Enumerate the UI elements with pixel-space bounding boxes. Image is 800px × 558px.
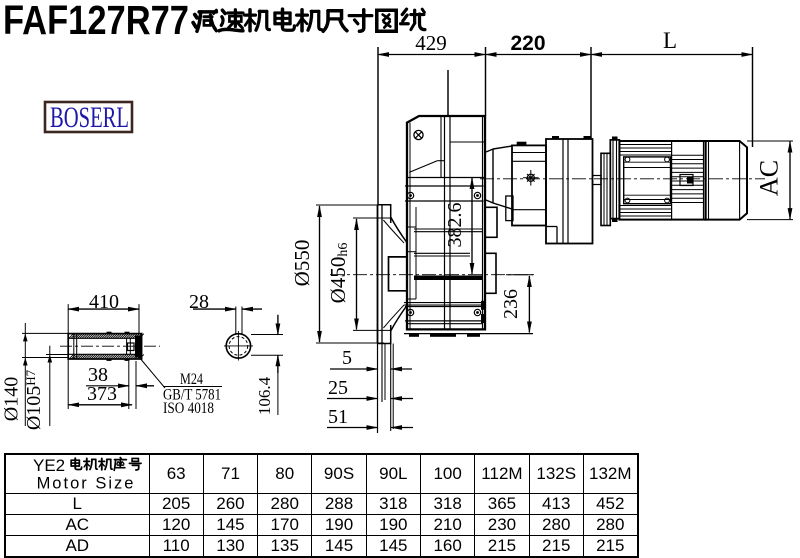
svg-text:Ø140: Ø140 bbox=[1, 377, 23, 421]
svg-text:51: 51 bbox=[328, 406, 348, 428]
svg-text:AC: AC bbox=[755, 160, 784, 196]
svg-text:Ø550: Ø550 bbox=[290, 240, 314, 287]
svg-text:L: L bbox=[663, 28, 677, 53]
svg-text:YE2: YE2 bbox=[33, 456, 65, 475]
svg-text:M24: M24 bbox=[180, 371, 203, 388]
svg-text:429: 429 bbox=[415, 31, 447, 55]
svg-text:5: 5 bbox=[342, 347, 352, 369]
svg-text:25: 25 bbox=[328, 377, 348, 399]
svg-text:Motor Size: Motor Size bbox=[37, 475, 136, 493]
svg-text:236: 236 bbox=[500, 289, 522, 319]
svg-text:ISO 4018: ISO 4018 bbox=[163, 400, 214, 417]
svg-text:106.4: 106.4 bbox=[255, 376, 274, 415]
svg-text:Ø105H7: Ø105H7 bbox=[23, 369, 45, 430]
svg-text:FAF127R77: FAF127R77 bbox=[3, 0, 189, 43]
svg-text:382.6: 382.6 bbox=[444, 203, 466, 248]
svg-text:373: 373 bbox=[87, 383, 117, 405]
svg-text:Ø450h6: Ø450h6 bbox=[326, 243, 351, 304]
svg-text:BOSERL: BOSERL bbox=[50, 101, 129, 134]
svg-text:220: 220 bbox=[510, 32, 545, 55]
